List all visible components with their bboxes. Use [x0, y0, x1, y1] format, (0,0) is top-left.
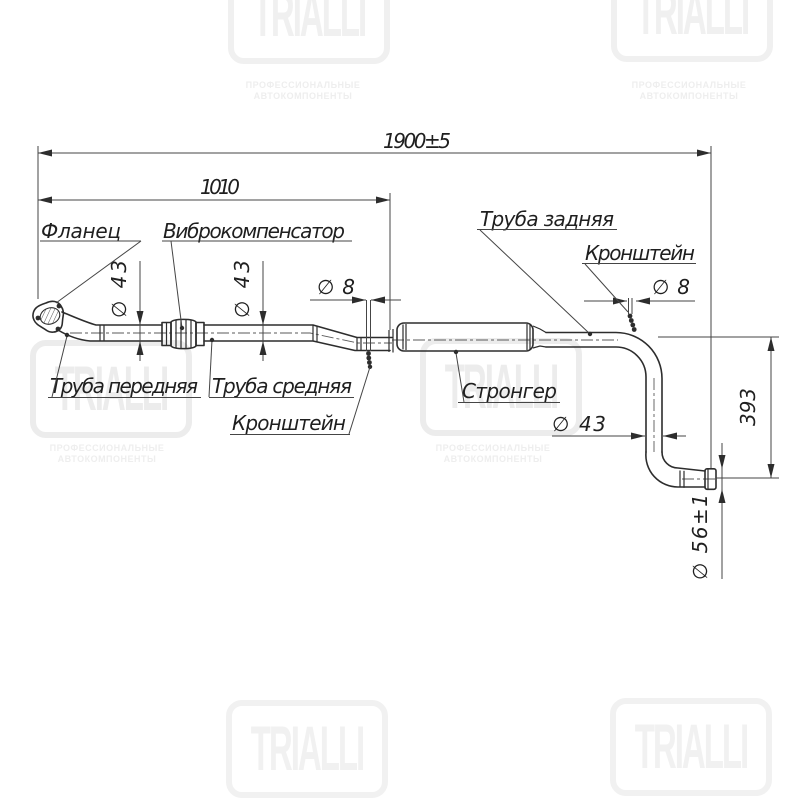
dim-diameter-43-downpipe-text: ∅ 43: [552, 412, 606, 436]
dim-diameter-8-front: ∅ 8: [310, 275, 401, 300]
svg-text:Труба передняя: Труба передняя: [50, 374, 198, 398]
label-stronger: Стронгер: [454, 350, 560, 403]
hanger-bracket-front: [366, 300, 372, 369]
dim-front-length: 1010: [38, 175, 390, 200]
hanger-bracket-rear: [628, 298, 637, 332]
label-front-pipe: Труба передняя: [48, 333, 201, 398]
flange-bolt-hole: [36, 316, 41, 321]
flange: [33, 301, 63, 332]
dim-overall-length: 1900±5: [38, 129, 711, 153]
dim-diameter-43-middle-text: ∅ 43: [230, 260, 254, 318]
dim-diameter-43-middle: ∅ 43: [230, 260, 263, 361]
dimension-lines: 1900±5 1010 ∅ 43 ∅ 43 ∅ 8: [38, 129, 779, 580]
flange-bolt-hole: [57, 304, 62, 309]
stronger-resonator: [389, 323, 546, 353]
svg-text:Кронштейн: Кронштейн: [585, 241, 695, 265]
dim-diameter-8-rear: ∅ 8: [584, 275, 695, 301]
dim-diameter-56-tip: ∅ 56±1: [688, 443, 722, 580]
label-rear-pipe: Труба задняя: [477, 207, 617, 336]
dim-overall-length-text: 1900±5: [383, 129, 451, 153]
part-labels: Фланец Виброкомпенсатор Труба задняя Кро…: [40, 207, 696, 435]
dim-height-393-text: 393: [736, 388, 760, 426]
pipe-centerlines: [70, 333, 716, 479]
dim-diameter-8-front-text: ∅ 8: [317, 275, 355, 299]
svg-text:Труба задняя: Труба задняя: [480, 207, 614, 231]
dim-diameter-43-front: ∅ 43: [107, 260, 140, 361]
label-middle-pipe: Труба средняя: [209, 338, 354, 398]
svg-text:Стронгер: Стронгер: [462, 379, 557, 403]
middle-pipe: [204, 325, 392, 351]
vibro-compensator: [162, 319, 204, 348]
rear-pipe: [546, 333, 716, 490]
dim-diameter-56-tip-text: ∅ 56±1: [688, 494, 712, 580]
svg-text:Фланец: Фланец: [41, 219, 121, 243]
dim-diameter-43-front-text: ∅ 43: [107, 260, 131, 318]
dim-diameter-8-rear-text: ∅ 8: [652, 275, 690, 299]
svg-text:Труба средняя: Труба средняя: [212, 374, 352, 398]
exhaust-pipe-drawing: 1900±5 1010 ∅ 43 ∅ 43 ∅ 8: [0, 0, 800, 800]
svg-text:Виброкомпенсатор: Виброкомпенсатор: [163, 219, 345, 243]
svg-text:Кронштейн: Кронштейн: [232, 411, 346, 435]
dim-diameter-43-downpipe: ∅ 43: [552, 412, 686, 436]
technical-drawing: 1900±5 1010 ∅ 43 ∅ 43 ∅ 8: [0, 0, 800, 800]
dim-front-length-text: 1010: [200, 175, 240, 199]
dim-height-393: 393: [736, 337, 771, 478]
